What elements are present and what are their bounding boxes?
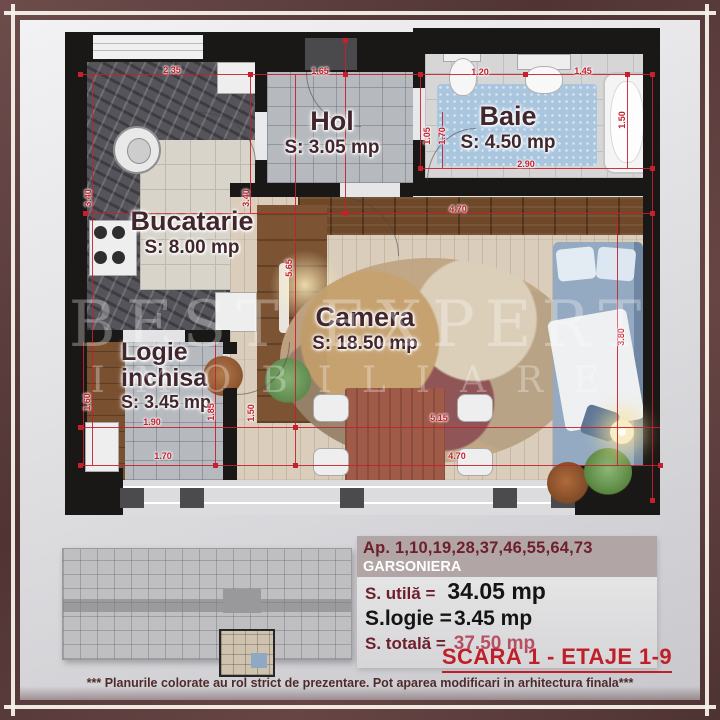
floor-plan: Bucatarie S: 8.00 mp Hol S: 3.05 mp Baie… xyxy=(65,28,660,515)
toilet-icon xyxy=(449,58,477,96)
dimension-label: 5.15 xyxy=(430,413,448,423)
kitchen-window xyxy=(93,35,203,59)
dimension-label: 1.20 xyxy=(471,67,489,77)
dimension-marker xyxy=(650,498,655,503)
dimension-marker xyxy=(78,425,83,430)
dimension-label: 1.05 xyxy=(422,127,432,145)
dimension-label: 1.50 xyxy=(246,404,256,422)
room-label-hol: Hol S: 3.05 mp xyxy=(252,108,412,157)
stove-burner xyxy=(94,251,107,264)
building-corridor xyxy=(63,599,351,612)
wall xyxy=(65,468,123,515)
window-post xyxy=(493,488,517,508)
dimension-label: 1.90 xyxy=(143,417,161,427)
dimension-marker xyxy=(523,72,528,77)
room-label-baie: Baie S: 4.50 mp xyxy=(428,103,588,152)
bed-sofa xyxy=(553,242,643,482)
area-label: S. utilă = xyxy=(365,584,435,604)
bottom-shade xyxy=(20,686,700,700)
room-name: Hol xyxy=(252,108,412,136)
room-name: Camera xyxy=(285,304,445,332)
area-row-utila: S. utilă = 34.05 mp xyxy=(357,577,657,606)
scara-etaje-label: SCARA 1 - ETAJE 1-9 xyxy=(442,644,672,673)
dimension-label: 5.65 xyxy=(284,259,294,277)
dimension-marker xyxy=(658,463,663,468)
room-name: Baie xyxy=(428,103,588,131)
dimension-label: 4.70 xyxy=(449,204,467,214)
kitchen-cabinet-top xyxy=(217,62,257,94)
dimension-marker xyxy=(343,72,348,77)
dimension-marker xyxy=(650,211,655,216)
dimension-label: 3.80 xyxy=(616,328,626,346)
highlighted-unit xyxy=(219,629,275,677)
floor-lamp-icon xyxy=(610,420,634,444)
window-post xyxy=(180,488,204,508)
room-label-bucatarie: Bucatarie S: 8.00 mp xyxy=(112,208,272,257)
dimension-marker xyxy=(293,463,298,468)
area-value: 34.05 mp xyxy=(447,578,545,605)
dimension-label: 1.65 xyxy=(311,66,329,76)
frame-line-right xyxy=(705,4,709,716)
dimension-line xyxy=(652,74,653,500)
plant xyxy=(584,448,632,496)
dimension-label: 1.70 xyxy=(437,127,447,145)
window-post xyxy=(120,488,144,508)
area-label: S.logie = xyxy=(365,607,452,631)
pillow xyxy=(555,246,596,282)
dimension-label: 4.70 xyxy=(448,451,466,461)
room-area: S: 18.50 mp xyxy=(285,334,445,353)
frame-line-bottom xyxy=(4,705,716,709)
dimension-marker xyxy=(213,463,218,468)
building-outline xyxy=(62,548,352,660)
room-name: Logie inchisa xyxy=(121,340,271,391)
building-overview-plan xyxy=(62,540,352,670)
kitchen-sink-icon xyxy=(113,126,161,174)
screenshot-root: Bucatarie S: 8.00 mp Hol S: 3.05 mp Baie… xyxy=(0,0,720,720)
dimension-marker xyxy=(83,211,88,216)
dimension-marker xyxy=(248,72,253,77)
room-area: S: 4.50 mp xyxy=(428,133,588,152)
room-name: Bucatarie xyxy=(112,208,272,236)
room-area: S: 8.00 mp xyxy=(112,238,272,257)
dimension-line xyxy=(627,74,628,168)
info-header: Ap. 1,10,19,28,37,46,55,64,73 GARSONIERA xyxy=(357,536,657,577)
plant xyxy=(547,462,589,504)
wall xyxy=(255,62,267,112)
apartment-numbers: Ap. 1,10,19,28,37,46,55,64,73 xyxy=(363,539,651,558)
dimension-label: 2.90 xyxy=(517,159,535,169)
dimension-line xyxy=(92,74,93,465)
dimension-marker xyxy=(78,72,83,77)
dimension-marker xyxy=(343,211,348,216)
dimension-marker xyxy=(418,166,423,171)
dimension-marker xyxy=(343,38,348,43)
dimension-line xyxy=(420,168,652,169)
window-post xyxy=(340,488,364,508)
dimension-label: 1.85 xyxy=(206,403,216,421)
chair xyxy=(457,394,493,422)
dimension-marker xyxy=(293,425,298,430)
dimension-label: 1.50 xyxy=(617,111,627,129)
dimension-label: 2.35 xyxy=(163,65,181,75)
frame-line-left xyxy=(11,4,15,716)
dimension-line xyxy=(420,74,421,168)
dimension-label: 1.60 xyxy=(82,393,92,411)
highlighted-unit-bed xyxy=(251,653,267,668)
dining-table xyxy=(345,388,445,484)
room-label-camera: Camera S: 18.50 mp xyxy=(285,304,445,353)
wall xyxy=(65,330,123,342)
dimension-label: 3.40 xyxy=(83,189,93,207)
pillow xyxy=(596,246,637,281)
area-row-logie: S.logie = 3.45 mp xyxy=(357,606,657,632)
building-elevator-core xyxy=(223,589,261,613)
room-area: S: 3.05 mp xyxy=(252,138,412,157)
kitchen-sink-basin xyxy=(127,138,151,164)
dimension-line xyxy=(80,465,660,466)
dimension-marker xyxy=(78,463,83,468)
stove-burner xyxy=(94,226,107,239)
dimension-marker xyxy=(650,166,655,171)
wall xyxy=(413,28,660,54)
wall xyxy=(400,183,413,197)
content-area: Bucatarie S: 8.00 mp Hol S: 3.05 mp Baie… xyxy=(20,20,700,700)
dimension-marker xyxy=(650,72,655,77)
area-label: S. totală = xyxy=(365,634,446,654)
unit-type: GARSONIERA xyxy=(363,559,651,575)
dimension-marker xyxy=(418,72,423,77)
dimension-marker xyxy=(625,72,630,77)
dimension-label: 3.40 xyxy=(241,189,251,207)
room-label-logie: Logie inchisa S: 3.45 mp xyxy=(121,340,271,411)
dimension-line xyxy=(80,427,660,428)
dimension-label: 1.70 xyxy=(154,451,172,461)
kitchen-cabinet-bottom xyxy=(215,292,257,332)
frame-line-top xyxy=(4,11,716,15)
bathroom-sink-icon xyxy=(525,66,563,94)
chair xyxy=(313,394,349,422)
wall xyxy=(413,54,425,88)
lamp-bulb xyxy=(618,428,626,436)
area-value: 3.45 mp xyxy=(454,607,532,631)
chair xyxy=(313,448,349,476)
dimension-label: 1.45 xyxy=(574,66,592,76)
